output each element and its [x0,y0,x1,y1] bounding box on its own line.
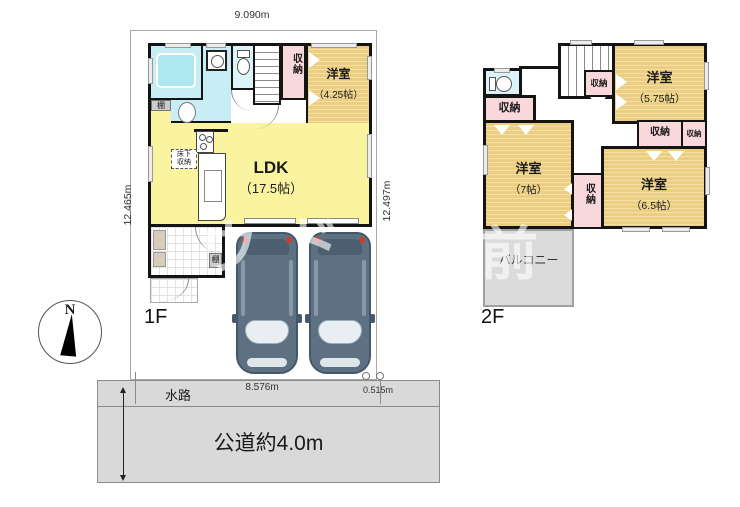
western-room-7-size: （7帖） [510,184,547,196]
watermark-glyph: ド [283,216,341,274]
shelf-top: 棚 [151,100,171,111]
window [206,43,226,48]
window [705,167,710,195]
closet-2f-between-label: 収納 [582,183,595,205]
porch [150,278,198,303]
closet-door-chevron [590,97,606,107]
window [634,40,664,45]
waterway-divider [98,406,439,407]
washroom [203,46,231,123]
watermark-glyph: 前 [480,226,538,284]
western-room-65: 洋室 （6.5帖） [601,146,707,229]
dimension-right: 12.497m [381,166,393,236]
door-arc [159,279,189,302]
closet-door-chevron [309,52,320,68]
closet-door-chevron [616,74,627,90]
car-bumper [320,358,360,367]
compass-needle-icon [60,313,80,356]
ldk-main: LDK （17.5帖） 床下 収納 [151,123,369,224]
toilet-1f [231,46,253,90]
window [367,134,372,178]
toilet-bowl-icon [237,58,250,75]
western-room-425-name: 洋室 [326,67,350,81]
closet-2f-left: 収納 [483,95,536,123]
closet-door-chevron [668,151,684,161]
western-room-575-name: 洋室 [646,70,672,85]
boundary-extension-line [135,372,136,404]
closet-door-chevron [518,125,534,135]
shelf-top-label: 棚 [152,101,170,111]
toilet-icon [237,50,250,58]
dimension-top: 9.090m [217,9,287,21]
closet-2f-left-label: 収納 [486,102,533,116]
window [148,146,153,182]
window [165,43,191,48]
stove [196,131,214,153]
floor2-label: 2F [481,306,504,329]
washing-machine-icon [206,50,227,71]
bathtub [156,53,196,88]
underfloor-line1: 床下 [177,151,191,158]
closet-door-chevron [616,94,627,110]
kitchen-counter [198,153,226,221]
bathroom [151,46,203,100]
western-room-65-size: （6.5帖） [631,200,677,212]
western-room-425: 洋室 （4.25帖） [306,46,369,125]
house-1f: 収納 洋室 （4.25帖） 棚 LDK （17.5帖） [148,43,372,227]
car-side-rail [362,260,366,316]
closet-door-chevron [494,125,510,135]
window [311,43,357,48]
window [367,56,372,80]
shoe-cabinet [153,252,166,267]
window [570,40,592,45]
ldk-size: （17.5帖） [239,181,303,196]
closet-2f-by-stairs: 収納 [584,70,614,97]
closet-door-chevron [309,90,320,106]
window [494,68,510,73]
car-mirror [305,314,310,323]
stairs-1f [253,46,281,105]
western-room-65-name: 洋室 [641,177,667,192]
window [622,227,650,232]
western-room-7: 洋室 （7帖） [483,120,574,229]
door-arc [231,90,252,111]
compass: N [38,300,102,364]
window [483,145,488,175]
underfloor-storage: 床下 収納 [171,149,197,169]
road-area: 水路 公道約4.0m [97,380,440,483]
closet-2f-mid-small: 収納 [681,120,707,149]
kitchen-sink [204,170,222,202]
closet-2f-mid-label: 収納 [639,127,681,140]
car-bumper [247,358,287,367]
floor-plan-canvas: 9.090m 12.465m 12.497m 収納 [0,0,740,507]
boundary-marker [376,372,384,380]
car-windshield [318,320,362,344]
watermark-glyph: ウ [200,220,258,278]
boundary-marker [362,372,370,380]
ldk-name: LDK [254,158,289,177]
car-mirror [370,314,375,323]
dimension-left: 12.465m [122,170,134,240]
car-mirror [297,314,302,323]
toilet-2f [483,68,522,97]
ldk [151,111,171,123]
closet-2f-by-stairs-label: 収納 [586,78,612,89]
window [148,58,153,84]
closet-1f-label: 収納 [289,53,302,75]
shoe-cabinet [153,230,166,250]
toilet-bowl-icon [496,76,512,92]
western-room-7-name: 洋室 [515,161,541,176]
car-windshield [245,320,289,344]
dimension-frontage: 8.576m [227,382,297,393]
window [662,227,690,232]
road-width-arrow [123,391,124,476]
closet-2f-mid-small-label: 収納 [683,129,705,138]
arrow-up-icon [120,387,126,393]
wall-segment [519,66,561,69]
waterway-label: 水路 [156,388,200,404]
road-label: 公道約4.0m [98,431,439,457]
washroom-sink-area [171,100,203,123]
dimension-corner: 0.515m [348,385,408,395]
floor1-label: 1F [144,306,167,329]
western-room-575-size: （5.75帖） [634,93,686,105]
closet-2f-mid: 収納 [637,120,683,149]
car-mirror [232,314,237,323]
underfloor-line2: 収納 [177,159,191,166]
western-room-425-size: （4.25帖） [314,90,363,101]
toilet-tank-icon [489,77,496,91]
closet-1f: 収納 [281,46,306,100]
closet-door-chevron [646,151,662,161]
western-room-575: 洋室 （5.75帖） [612,43,707,124]
sink-icon [178,102,196,123]
closet-2f-between: 収納 [572,173,603,229]
arrow-down-icon [120,475,126,481]
window [704,62,709,90]
